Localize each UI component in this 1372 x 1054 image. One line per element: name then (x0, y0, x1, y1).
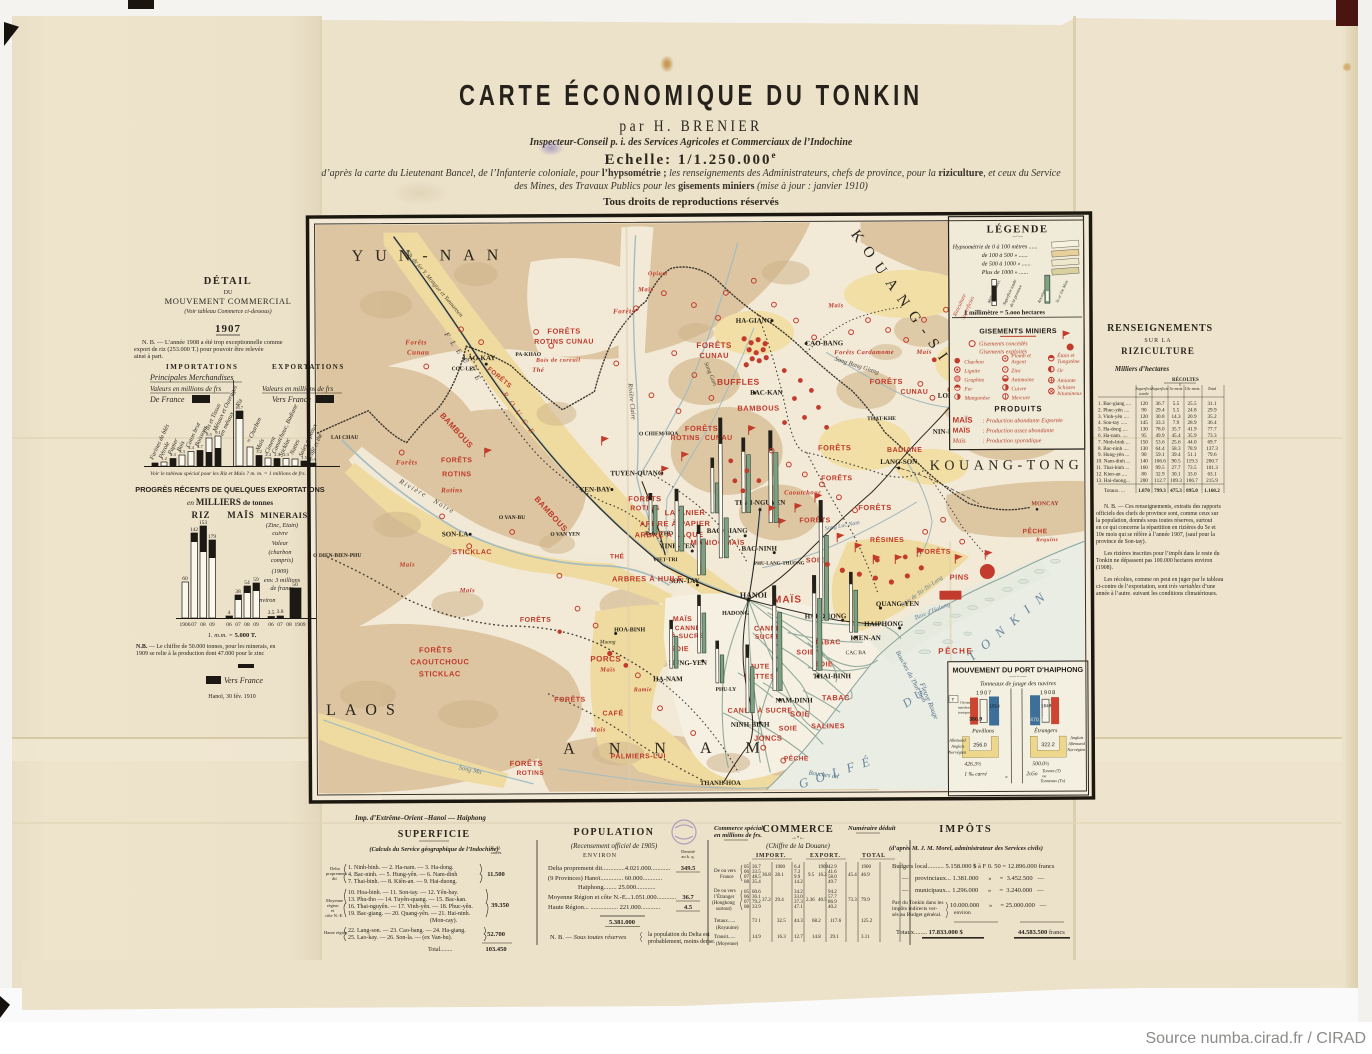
svg-text:215.9: 215.9 (1206, 478, 1218, 484)
svg-text:1906: 1906 (180, 622, 191, 628)
svg-text:54: 54 (244, 580, 250, 586)
svg-text:(Mon-cay).: (Mon-cay). (430, 917, 458, 924)
svg-text:N. B. — Ces renseignements, ex: N. B. — Ces renseignements, extraits des… (1104, 504, 1222, 510)
svg-text:N. B. — Sous toutes réserves: N. B. — Sous toutes réserves (550, 934, 627, 941)
svg-text:MINERAIS: MINERAIS (260, 510, 307, 520)
svg-text:ROTINS: ROTINS (517, 770, 545, 777)
svg-text:52.700: 52.700 (487, 931, 505, 938)
svg-text:1900: 1900 (861, 865, 872, 870)
svg-text:Haïphong........ 25.000......: Haïphong........ 25.000............ (578, 884, 656, 891)
svg-text:—— • ——: —— • —— (1009, 674, 1027, 678)
svg-text:Étrangers: Étrangers (1033, 726, 1058, 734)
svg-text:7.9: 7.9 (1173, 420, 1180, 426)
svg-text:Maïs: Maïs (399, 561, 415, 568)
svg-text:36.7: 36.7 (1155, 401, 1164, 407)
svg-text:au k. q.: au k. q. (681, 854, 694, 859)
svg-text:1 millimètre = 5.ooo hectares: 1 millimètre = 5.ooo hectares (964, 309, 1045, 316)
svg-text:SALINES: SALINES (811, 723, 845, 730)
svg-text:CANNE: CANNE (754, 626, 781, 633)
svg-text:69.7: 69.7 (1207, 439, 1216, 445)
svg-text:ROTINS: ROTINS (442, 471, 471, 478)
svg-text:(Hongkong: (Hongkong (712, 901, 735, 906)
svg-text:YEN-BAY: YEN-BAY (579, 485, 610, 493)
svg-text:1907: 1907 (215, 323, 241, 335)
svg-text:ROTINS CUNAU: ROTINS CUNAU (534, 339, 594, 346)
svg-text:80: 80 (1141, 471, 1147, 477)
svg-text:28.9: 28.9 (1187, 420, 1196, 426)
svg-text:Numéraire déduit: Numéraire déduit (847, 825, 896, 832)
svg-text:150: 150 (1140, 439, 1148, 445)
svg-text:Manganèse: Manganèse (963, 395, 990, 401)
svg-text:Tonkin ne dépassent pas 100.00: Tonkin ne dépassent pas 100.000 hectares… (1096, 558, 1212, 564)
svg-text:142: 142 (190, 527, 199, 533)
svg-text:Hypsométrie de 0 à 100 mètres: Hypsométrie de 0 à 100 mètres ...... (952, 244, 1038, 250)
svg-text:FORÊTS: FORÊTS (520, 615, 551, 624)
svg-text:3.5: 3.5 (268, 610, 275, 616)
svg-text:349.5: 349.5 (681, 865, 696, 872)
svg-text:THÉ: THÉ (610, 551, 625, 560)
svg-text:TOTAL: TOTAL (862, 853, 886, 859)
svg-text:106.7: 106.7 (1186, 478, 1198, 484)
svg-text:6. Ha-nam. ....: 6. Ha-nam. .... (1098, 433, 1128, 439)
svg-text:60: 60 (182, 576, 188, 582)
svg-text:HADONG: HADONG (722, 611, 749, 617)
svg-text:Plus de 1000 » ......: Plus de 1000 » ...... (981, 270, 1028, 276)
svg-text:Milliers d’hectares: Milliers d’hectares (1114, 365, 1170, 373)
svg-text:Moyenne Région et côte N.-E...: Moyenne Région et côte N.-E...1.051.000.… (548, 894, 677, 901)
svg-text:256.0: 256.0 (973, 743, 987, 749)
svg-text:45.4: 45.4 (1171, 433, 1180, 439)
svg-text:VIET-TRI: VIET-TRI (653, 557, 678, 563)
svg-text:en millions de frs.: en millions de frs. (714, 832, 762, 839)
svg-text:44.0: 44.0 (1187, 439, 1196, 445)
svg-text:39.4: 39.4 (1171, 452, 1180, 458)
svg-text:9. Hung-yên ...: 9. Hung-yên ... (1098, 452, 1129, 458)
svg-text:44.3: 44.3 (794, 919, 803, 924)
svg-text:59.1: 59.1 (1155, 452, 1164, 458)
svg-text:TUYEN-QUANG: TUYEN-QUANG (610, 469, 663, 477)
svg-text:côte N.-E.: côte N.-E. (325, 913, 343, 918)
svg-text:KOUANG-TONG: KOUANG-TONG (930, 458, 1084, 474)
svg-text:NINH-BINH: NINH-BINH (731, 721, 770, 729)
svg-text:HA-GIANG: HA-GIANG (736, 317, 773, 325)
svg-text:PRODUITS: PRODUITS (994, 404, 1042, 413)
svg-text:QUANG-YEN: QUANG-YEN (876, 600, 919, 608)
svg-text:environ: environ (954, 910, 971, 916)
svg-text:FORÊTS: FORÊTS (441, 455, 472, 464)
svg-text:BADIANE: BADIANE (887, 447, 922, 454)
svg-text:Cunau: Cunau (407, 348, 429, 356)
svg-text:France: France (720, 875, 734, 880)
svg-text:200.7: 200.7 (1206, 459, 1218, 465)
svg-text:Graphite: Graphite (964, 378, 984, 384)
svg-text:sés au Budget général.: sés au Budget général. (892, 912, 942, 918)
svg-text:125.2: 125.2 (861, 919, 873, 924)
svg-text:IMPÔTS: IMPÔTS (939, 822, 992, 835)
svg-text:7. Ninh-binh ...: 7. Ninh-binh ... (1098, 439, 1130, 445)
svg-text:2o5o: 2o5o (1026, 771, 1037, 777)
svg-text:22. Lang-son. — 23. Cao-ba: 22. Lang-son. — 23. Cao-bang. — 24. Ha-g… (348, 928, 466, 934)
svg-text:10e mois: 10e mois (1184, 386, 1199, 391)
svg-text:140: 140 (1140, 459, 1148, 465)
svg-text:16.2: 16.2 (818, 873, 827, 878)
svg-text:32.5: 32.5 (777, 919, 786, 924)
svg-text:CAOUTCHOUC: CAOUTCHOUC (410, 657, 469, 666)
svg-text:79.6: 79.6 (1207, 452, 1216, 458)
svg-text:Anglais: Anglais (1069, 735, 1083, 740)
svg-text:12. Kien-an ....: 12. Kien-an .... (1096, 471, 1127, 477)
svg-text:47.1: 47.1 (794, 905, 803, 910)
svg-text:carrés: carrés (491, 850, 502, 855)
svg-text:(1909): (1909) (272, 568, 289, 575)
svg-text:probablement, moins dense.: probablement, moins dense. (648, 939, 716, 945)
svg-text:Forêts: Forêts (613, 307, 635, 315)
svg-text:(Zinc, Etain): (Zinc, Etain) (266, 522, 298, 529)
svg-text:Maïs: Maïs (599, 666, 615, 673)
svg-text:PHU-LY: PHU-LY (716, 687, 737, 693)
svg-text:29.9: 29.9 (1207, 407, 1216, 413)
svg-text:SUPERFICIE: SUPERFICIE (398, 829, 471, 840)
svg-text:Forêts: Forêts (405, 338, 427, 346)
svg-text:LATANIER: LATANIER (665, 508, 706, 517)
svg-text:PROGRÈS RÉCENTS DE QUELQUES EX: PROGRÈS RÉCENTS DE QUELQUES EXPORTATIONS (135, 485, 325, 494)
svg-text:CAFÉ: CAFÉ (603, 708, 624, 717)
svg-text:09: 09 (209, 622, 215, 628)
svg-text:Norvégien: Norvégien (947, 750, 966, 755)
svg-text:73.3: 73.3 (1207, 433, 1216, 439)
svg-text:BUFFLES: BUFFLES (717, 377, 760, 387)
svg-text:BAMBOUS: BAMBOUS (737, 404, 779, 413)
svg-text:322.2: 322.2 (1041, 742, 1055, 748)
svg-text:51.1: 51.1 (1187, 452, 1196, 458)
svg-text:179: 179 (208, 534, 217, 540)
svg-text:CAC BA: CAC BA (846, 650, 866, 656)
svg-text:Étain et: Étain et (1056, 351, 1075, 359)
svg-text:9.5: 9.5 (808, 873, 815, 878)
svg-text:cuivre: cuivre (272, 530, 288, 537)
svg-text:IMPORT.: IMPORT. (756, 853, 786, 859)
svg-text:de 100 à 500 » ......: de 100 à 500 » ...... (982, 253, 1028, 259)
svg-text:SOIE: SOIE (779, 725, 798, 732)
svg-text:surtout): surtout) (716, 907, 732, 912)
svg-text:Budgets local.......... 5.15: Budgets local.......... 5.158.000 $ à F … (892, 863, 1055, 870)
svg-text:FORÊTS: FORÊTS (858, 503, 891, 512)
svg-text:FORÊTS: FORÊTS (818, 443, 851, 452)
svg-text:Tungstène: Tungstène (1057, 359, 1080, 365)
svg-text:06: 06 (226, 622, 232, 628)
svg-text:Vers France: Vers France (272, 395, 311, 404)
svg-text:35.9: 35.9 (1187, 433, 1196, 439)
svg-text:FORÊTS: FORÊTS (419, 645, 452, 654)
svg-text:95: 95 (1141, 433, 1147, 439)
svg-text:78.0: 78.0 (1155, 427, 1164, 433)
svg-text:112.7: 112.7 (1154, 478, 1166, 484)
svg-text:RIZ: RIZ (191, 510, 210, 520)
svg-text:compris): compris) (271, 557, 293, 564)
svg-text:40.5: 40.5 (818, 898, 827, 903)
svg-text:Hanoï, 30 fév. 1910: Hanoï, 30 fév. 1910 (208, 693, 255, 700)
svg-text:Maïs: Maïs (827, 302, 843, 309)
svg-text:Total: Total (1208, 386, 1217, 391)
svg-text:(1908).: (1908). (1096, 564, 1113, 571)
svg-text:HAIPHONG: HAIPHONG (864, 620, 903, 628)
svg-text:Total........: Total........ (428, 947, 453, 953)
svg-text:Totaux. ...: Totaux. ... (1104, 488, 1125, 494)
svg-text:YUN-NAN: YUN-NAN (352, 247, 511, 265)
svg-text:FORÊTS: FORÊTS (547, 327, 580, 336)
svg-text:officiels des chefs de provinc: officiels des chefs de province sont, co… (1096, 510, 1218, 517)
svg-text:FORÊTS: FORÊTS (799, 515, 830, 524)
svg-text:08: 08 (244, 622, 250, 628)
svg-text:10e mois qui se réfère à l’ann: 10e mois qui se réfère à l’année 1907, (… (1096, 531, 1215, 538)
svg-text:3. Vinh-yên ....: 3. Vinh-yên .... (1098, 414, 1129, 420)
svg-text:33.0: 33.0 (1187, 471, 1196, 477)
svg-text:Thé: Thé (532, 367, 545, 374)
svg-text:CAO-BANG: CAO-BANG (805, 339, 844, 347)
svg-text:59: 59 (253, 577, 259, 583)
svg-text:PORCS: PORCS (590, 654, 621, 663)
svg-text:33.9: 33.9 (752, 905, 761, 910)
svg-text:FORÊTS: FORÊTS (920, 547, 951, 556)
svg-text:78.9: 78.9 (1187, 446, 1196, 452)
svg-text:Valeurs en millions de frs: Valeurs en millions de frs (150, 385, 221, 393)
svg-text:Vers France: Vers France (224, 676, 263, 685)
svg-text:année à l’autre, suivant les c: année à l’autre, suivant les conditions … (1096, 591, 1218, 595)
svg-text:103.450: 103.450 (485, 946, 506, 953)
svg-text:FORÊTS: FORÊTS (870, 377, 903, 386)
svg-text:De ou vers: De ou vers (714, 869, 736, 874)
svg-text:1909 se relie à la production: 1909 se relie à la production dont 47.00… (136, 651, 264, 657)
svg-text:5.381.000: 5.381.000 (609, 919, 635, 926)
svg-text:120: 120 (1140, 401, 1148, 407)
svg-text:137.3: 137.3 (1206, 446, 1218, 452)
svg-text:16. Thai-nguyên. — 17. Vin: 16. Thai-nguyên. — 17. Vinh-yên. — 18. P… (348, 904, 473, 910)
svg-text:145: 145 (1140, 420, 1148, 426)
svg-text:COMMERCE: COMMERCE (762, 824, 833, 835)
svg-text:5e mois: 5e mois (1170, 386, 1183, 391)
svg-text:200: 200 (1140, 478, 1148, 484)
svg-text:NATTES: NATTES (745, 674, 776, 681)
svg-text:40.2: 40.2 (828, 905, 837, 910)
svg-text:ARBRES À HUILE: ARBRES À HUILE (612, 574, 683, 583)
svg-text:: Production abondante Exporté: : Production abondante Exportée (983, 418, 1064, 424)
svg-text:2.36: 2.36 (806, 898, 815, 903)
svg-text:Commerce spécial: Commerce spécial (714, 825, 763, 832)
svg-text:28.1: 28.1 (775, 873, 784, 878)
svg-text:totale: totale (1139, 391, 1149, 396)
svg-text:Rotins: Rotins (440, 486, 463, 494)
svg-text:10.000.000 » = 25.000: 10.000.000 » = 25.000.000 — (950, 902, 1047, 909)
svg-text:08: 08 (200, 622, 206, 628)
svg-text:119.3: 119.3 (1186, 459, 1198, 465)
svg-text:THAT-KHE: THAT-KHE (867, 416, 896, 422)
svg-text:Forêts Cardamome: Forêts Cardamome (834, 349, 894, 356)
svg-text:13. Phu-tho — 14. Tuyên-qu: 13. Phu-tho — 14. Tuyên-quang. — 15. Bac… (348, 897, 467, 903)
svg-text:08: 08 (744, 880, 750, 885)
svg-text:Superficie: Superficie (1152, 386, 1169, 391)
svg-text:(Royaume): (Royaume) (716, 926, 739, 931)
svg-text:08: 08 (744, 905, 750, 910)
svg-text:N. B. — L’année 1908 a été tro: N. B. — L’année 1908 a été trop exceptio… (142, 339, 283, 346)
svg-text:Delta proprement dit..........: Delta proprement dit..............4.021.… (548, 865, 671, 872)
svg-text:Transit......: Transit...... (714, 935, 736, 940)
svg-text:500.0½: 500.0½ (1032, 760, 1050, 767)
svg-text:O VAN-BU: O VAN-BU (499, 515, 525, 521)
svg-text:IMPORTATIONS: IMPORTATIONS (166, 363, 238, 371)
svg-text:MAÏS: MAÏS (673, 615, 693, 623)
svg-text:4. Son-tay .....: 4. Son-tay ..... (1098, 420, 1127, 426)
svg-text:Valeur: Valeur (272, 540, 289, 547)
svg-text:(Moyenne): (Moyenne) (716, 942, 739, 947)
svg-text:bitumineux: bitumineux (1057, 391, 1082, 397)
svg-text:32.9: 32.9 (1155, 471, 1164, 477)
svg-text:49.9: 49.9 (1155, 433, 1164, 439)
svg-text:de 500 à 1000 » ......: de 500 à 1000 » ...... (982, 261, 1031, 267)
svg-text:en MILLIERS de tonnes: en MILLIERS de tonnes (187, 497, 273, 507)
svg-text:35.7: 35.7 (1171, 427, 1180, 433)
svg-text:5.5: 5.5 (1173, 407, 1180, 413)
svg-text:49.7: 49.7 (828, 880, 837, 885)
svg-text:1614: 1614 (990, 703, 1001, 708)
svg-text:(9 Provinces) Hanoï..........: (9 Provinces) Hanoï.............. 60.000… (548, 875, 662, 882)
svg-text:export de riz (253.000 T.) pou: export de riz (253.000 T.) pour pouvoir … (134, 346, 264, 353)
svg-text:10. Hoa-binh. — 11. Son-ta: 10. Hoa-binh. — 11. Son-tay. — 12. Yên-b… (348, 890, 459, 896)
svg-text:09: 09 (253, 622, 259, 628)
svg-text:JONCS: JONCS (754, 734, 782, 743)
svg-text:: Production sporadique: : Production sporadique (983, 438, 1042, 444)
svg-text:36.8: 36.8 (762, 873, 771, 878)
svg-text:THANH-HOA: THANH-HOA (700, 780, 741, 787)
svg-text:MOUVEMENT DU PORT D'HAIPHONG: MOUVEMENT DU PORT D'HAIPHONG (953, 665, 1084, 675)
svg-text:Gisements concédés: Gisements concédés (979, 341, 1028, 347)
svg-text:Tonneaux (Tx): Tonneaux (Tx) (1040, 778, 1065, 783)
svg-text:FORÊTS: FORÊTS (510, 759, 543, 768)
svg-text:→•←: →•← (791, 835, 805, 841)
svg-text:FORÊTS: FORÊTS (628, 494, 661, 503)
svg-text:73.3: 73.3 (848, 898, 857, 903)
svg-text:Totaux......: Totaux...... (714, 919, 735, 924)
svg-text:1909: 1909 (818, 865, 829, 870)
svg-text:(Calculs du Service géographiq: (Calculs du Service géographique de l’In… (369, 846, 498, 853)
svg-text:35.4: 35.4 (752, 880, 761, 885)
svg-text:68.2: 68.2 (812, 919, 821, 924)
svg-text:ENVIRON: ENVIRON (583, 853, 617, 859)
svg-text:Tonneaux de jauge des navires: Tonneaux de jauge des navires (980, 680, 1056, 687)
svg-text:SON-LA: SON-LA (442, 530, 468, 538)
svg-text:14.8: 14.8 (812, 935, 821, 940)
svg-text:Maïs: Maïs (459, 587, 475, 594)
svg-text:LANG-SON: LANG-SON (880, 458, 917, 466)
svg-text:en ce qui concerne la répartit: en ce qui concerne la répartition en riz… (1096, 525, 1216, 531)
svg-text:DÉTAIL: DÉTAIL (204, 275, 252, 287)
svg-text:Pavillons: Pavillons (971, 728, 995, 734)
svg-text:Mercure: Mercure (1010, 395, 1030, 401)
svg-text:Imp. d’Extrême–Orient –Hanoi —: Imp. d’Extrême–Orient –Hanoi — Haiphong (354, 814, 486, 822)
svg-text:Maïs: Maïs (589, 726, 605, 733)
svg-text:130: 130 (1140, 427, 1148, 433)
svg-text:77.7: 77.7 (1207, 427, 1216, 433)
svg-text:63.1: 63.1 (1207, 471, 1216, 477)
svg-text:1900: 1900 (775, 865, 786, 870)
svg-text:MAÏS: MAÏS (773, 592, 802, 605)
svg-text:07: 07 (191, 622, 197, 628)
svg-text:153: 153 (199, 520, 208, 526)
svg-text:ainsi à part.: ainsi à part. (134, 353, 164, 360)
svg-text:—⋅—: —⋅— (1011, 233, 1023, 238)
svg-text:ci-contre de l’exportation, so: ci-contre de l’exportation, sont très va… (1096, 584, 1216, 590)
svg-text:CANNE À SUCRE: CANNE À SUCRE (728, 706, 793, 715)
svg-text:(Voir tableau Commerce ci-dess: (Voir tableau Commerce ci-dessous) (184, 308, 271, 315)
svg-text:25. Lao-kay. — 26. Son-la.: 25. Lao-kay. — 26. Son-la. — (ex Van-bu)… (348, 934, 453, 941)
svg-text:: Production assez abondante: : Production assez abondante (983, 428, 1055, 434)
svg-text:— provinciaux... 1.381.000: — provinciaux... 1.381.000 » = 3.452.500… (901, 875, 1044, 882)
svg-text:SOIE: SOIE (796, 649, 815, 656)
svg-text:30.1: 30.1 (1171, 471, 1180, 477)
svg-text:la population du Delta est: la population du Delta est (648, 932, 710, 938)
svg-text:3.11: 3.11 (861, 935, 870, 940)
svg-text:36.4: 36.4 (1207, 420, 1216, 426)
svg-text:PÊCHE: PÊCHE (938, 647, 973, 656)
svg-text:CUNAU: CUNAU (699, 351, 729, 360)
svg-text:Les rizières inscrites pour l’: Les rizières inscrites pour l’impôt dans… (1104, 551, 1220, 557)
svg-text:1909: 1909 (295, 622, 306, 628)
svg-text:SOIE: SOIE (670, 646, 689, 653)
svg-text:De France: De France (149, 395, 185, 404)
svg-text:120: 120 (1140, 414, 1148, 420)
svg-text:EXPORTATIONS: EXPORTATIONS (272, 363, 345, 371)
svg-text:Bois de coreuil: Bois de coreuil (535, 358, 581, 364)
svg-text:N.B. — Le chiffre de 50.000 to: N.B. — Le chiffre de 50.000 tonnes, pour… (136, 643, 275, 650)
svg-text:50: 50 (292, 582, 298, 588)
svg-text:Valeurs en millions de frs: Valeurs en millions de frs (262, 385, 333, 393)
svg-text:20.9: 20.9 (1187, 414, 1196, 420)
svg-text:53.6: 53.6 (1155, 439, 1164, 445)
svg-text:8. Bac-ninh ....: 8. Bac-ninh .... (1098, 446, 1129, 452)
svg-text:35.2: 35.2 (1207, 414, 1216, 420)
svg-text:799.3: 799.3 (1154, 488, 1166, 494)
svg-text:5. Ha-dong ....: 5. Ha-dong .... (1098, 427, 1128, 433)
svg-text:Lignite: Lignite (963, 369, 980, 375)
svg-text:STICKLAC: STICKLAC (453, 549, 492, 556)
svg-text:1 ‰ carré: 1 ‰ carré (964, 772, 987, 778)
svg-text:Ramie: Ramie (633, 687, 653, 693)
svg-text:1. m.m. = 5.000 T.: 1. m.m. = 5.000 T. (208, 632, 257, 639)
svg-text:RENSEIGNEMENTS: RENSEIGNEMENTS (1107, 323, 1213, 334)
svg-text:POPULATION: POPULATION (574, 827, 655, 838)
svg-text:MAÏS: MAÏS (953, 427, 971, 435)
svg-text:GISEMENTS MINIERS: GISEMENTS MINIERS (979, 328, 1057, 335)
svg-text:08: 08 (286, 622, 292, 628)
svg-text:— municipaux... 1.296.000: — municipaux... 1.296.000 » = 3.240.000 … (901, 887, 1044, 894)
svg-text:Maïs: Maïs (637, 286, 653, 293)
svg-text:MAÏS: MAÏS (227, 510, 255, 520)
svg-text:FORÊTS: FORÊTS (821, 473, 852, 482)
svg-text:Cuivre: Cuivre (1011, 386, 1026, 392)
svg-text:Allemand: Allemand (1067, 741, 1085, 746)
svg-text:7. Thai-binh. — 8. Kiên-an: 7. Thai-binh. — 8. Kiên-an. — 9. Hai-duo… (348, 879, 458, 885)
svg-text:46.9: 46.9 (861, 873, 870, 878)
svg-text:25.5: 25.5 (1187, 401, 1196, 407)
svg-text:130: 130 (1140, 446, 1148, 452)
svg-text:10. Nam-dinh ...: 10. Nam-dinh ... (1096, 459, 1130, 465)
svg-text:Amiante: Amiante (1056, 378, 1076, 384)
svg-text:16.3: 16.3 (777, 935, 786, 940)
svg-text:14.9: 14.9 (752, 935, 761, 940)
svg-text:MOUVEMENT COMMERCIAL: MOUVEMENT COMMERCIAL (165, 296, 292, 306)
svg-text:1907: 1907 (976, 690, 992, 696)
svg-text:31.1: 31.1 (1207, 401, 1216, 407)
svg-text:37.2: 37.2 (762, 898, 771, 903)
